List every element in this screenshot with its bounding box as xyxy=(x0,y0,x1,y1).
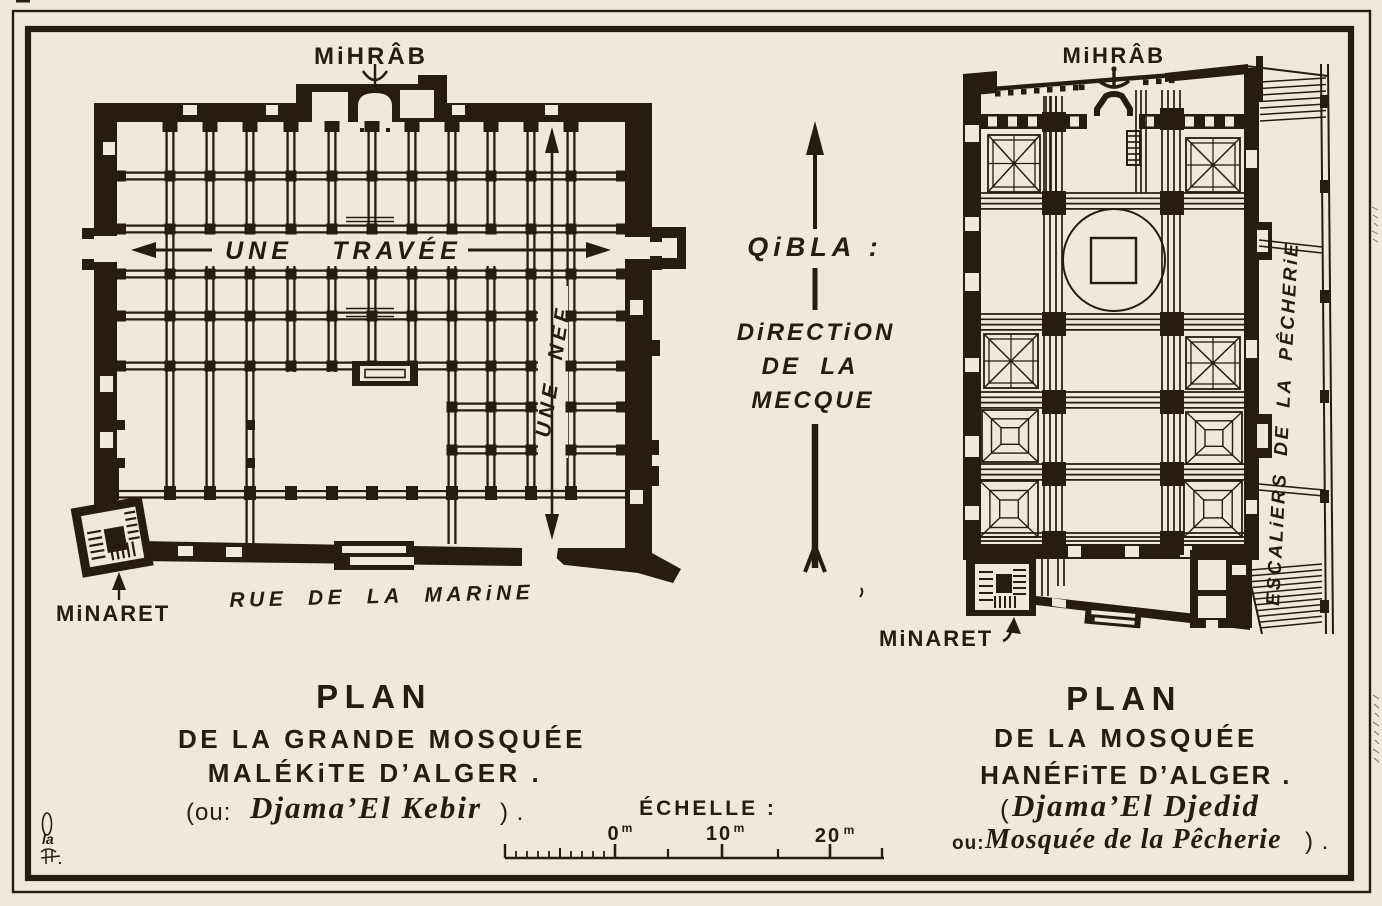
svg-text:DE LA: DE LA xyxy=(762,353,859,380)
svg-text:HANÉFiTE D’ALGER .: HANÉFiTE D’ALGER . xyxy=(980,760,1292,790)
svg-text:10: 10 xyxy=(706,823,732,845)
svg-text:) .: ) . xyxy=(1305,828,1329,855)
svg-text:Djama’El Kebir: Djama’El Kebir xyxy=(249,790,482,825)
svg-text:MECQUE: MECQUE xyxy=(751,387,874,414)
svg-text:Djama’El Djedid: Djama’El Djedid xyxy=(1011,788,1260,823)
svg-text:TRAVÉE: TRAVÉE xyxy=(332,236,462,265)
svg-text:) .: ) . xyxy=(500,799,524,826)
svg-text:UNE: UNE xyxy=(225,237,293,265)
svg-text:DE LA GRANDE MOSQUÉE: DE LA GRANDE MOSQUÉE xyxy=(178,724,586,754)
svg-text:m: m xyxy=(622,821,635,835)
svg-text:la: la xyxy=(42,831,54,847)
svg-text:DE LA MOSQUÉE: DE LA MOSQUÉE xyxy=(994,723,1258,753)
svg-text:ou:: ou: xyxy=(952,833,985,854)
svg-text:m: m xyxy=(734,821,747,835)
svg-text:(: ( xyxy=(1000,794,1010,824)
svg-text:20: 20 xyxy=(815,825,841,847)
svg-text:MiHRÂB: MiHRÂB xyxy=(1063,43,1166,68)
svg-text:MiNARET: MiNARET xyxy=(879,626,993,651)
svg-text:QiBLA :: QiBLA : xyxy=(747,232,883,262)
svg-text:DiRECTiON: DiRECTiON xyxy=(737,319,896,346)
svg-text:m: m xyxy=(844,823,857,837)
svg-text:ÉCHELLE :: ÉCHELLE : xyxy=(639,797,777,820)
svg-text:PLAN: PLAN xyxy=(1066,680,1182,717)
svg-text:0: 0 xyxy=(607,823,620,845)
svg-text:MiHRÂB: MiHRÂB xyxy=(314,42,428,70)
svg-text:Mosquée de la Pêcherie: Mosquée de la Pêcherie xyxy=(984,824,1282,855)
svg-text:.: . xyxy=(58,851,62,867)
svg-text:MALÉKiTE D’ALGER .: MALÉKiTE D’ALGER . xyxy=(208,758,543,788)
svg-text:MiNARET: MiNARET xyxy=(56,601,170,626)
svg-text:PLAN: PLAN xyxy=(316,678,432,715)
svg-text:(ou:: (ou: xyxy=(186,799,231,826)
